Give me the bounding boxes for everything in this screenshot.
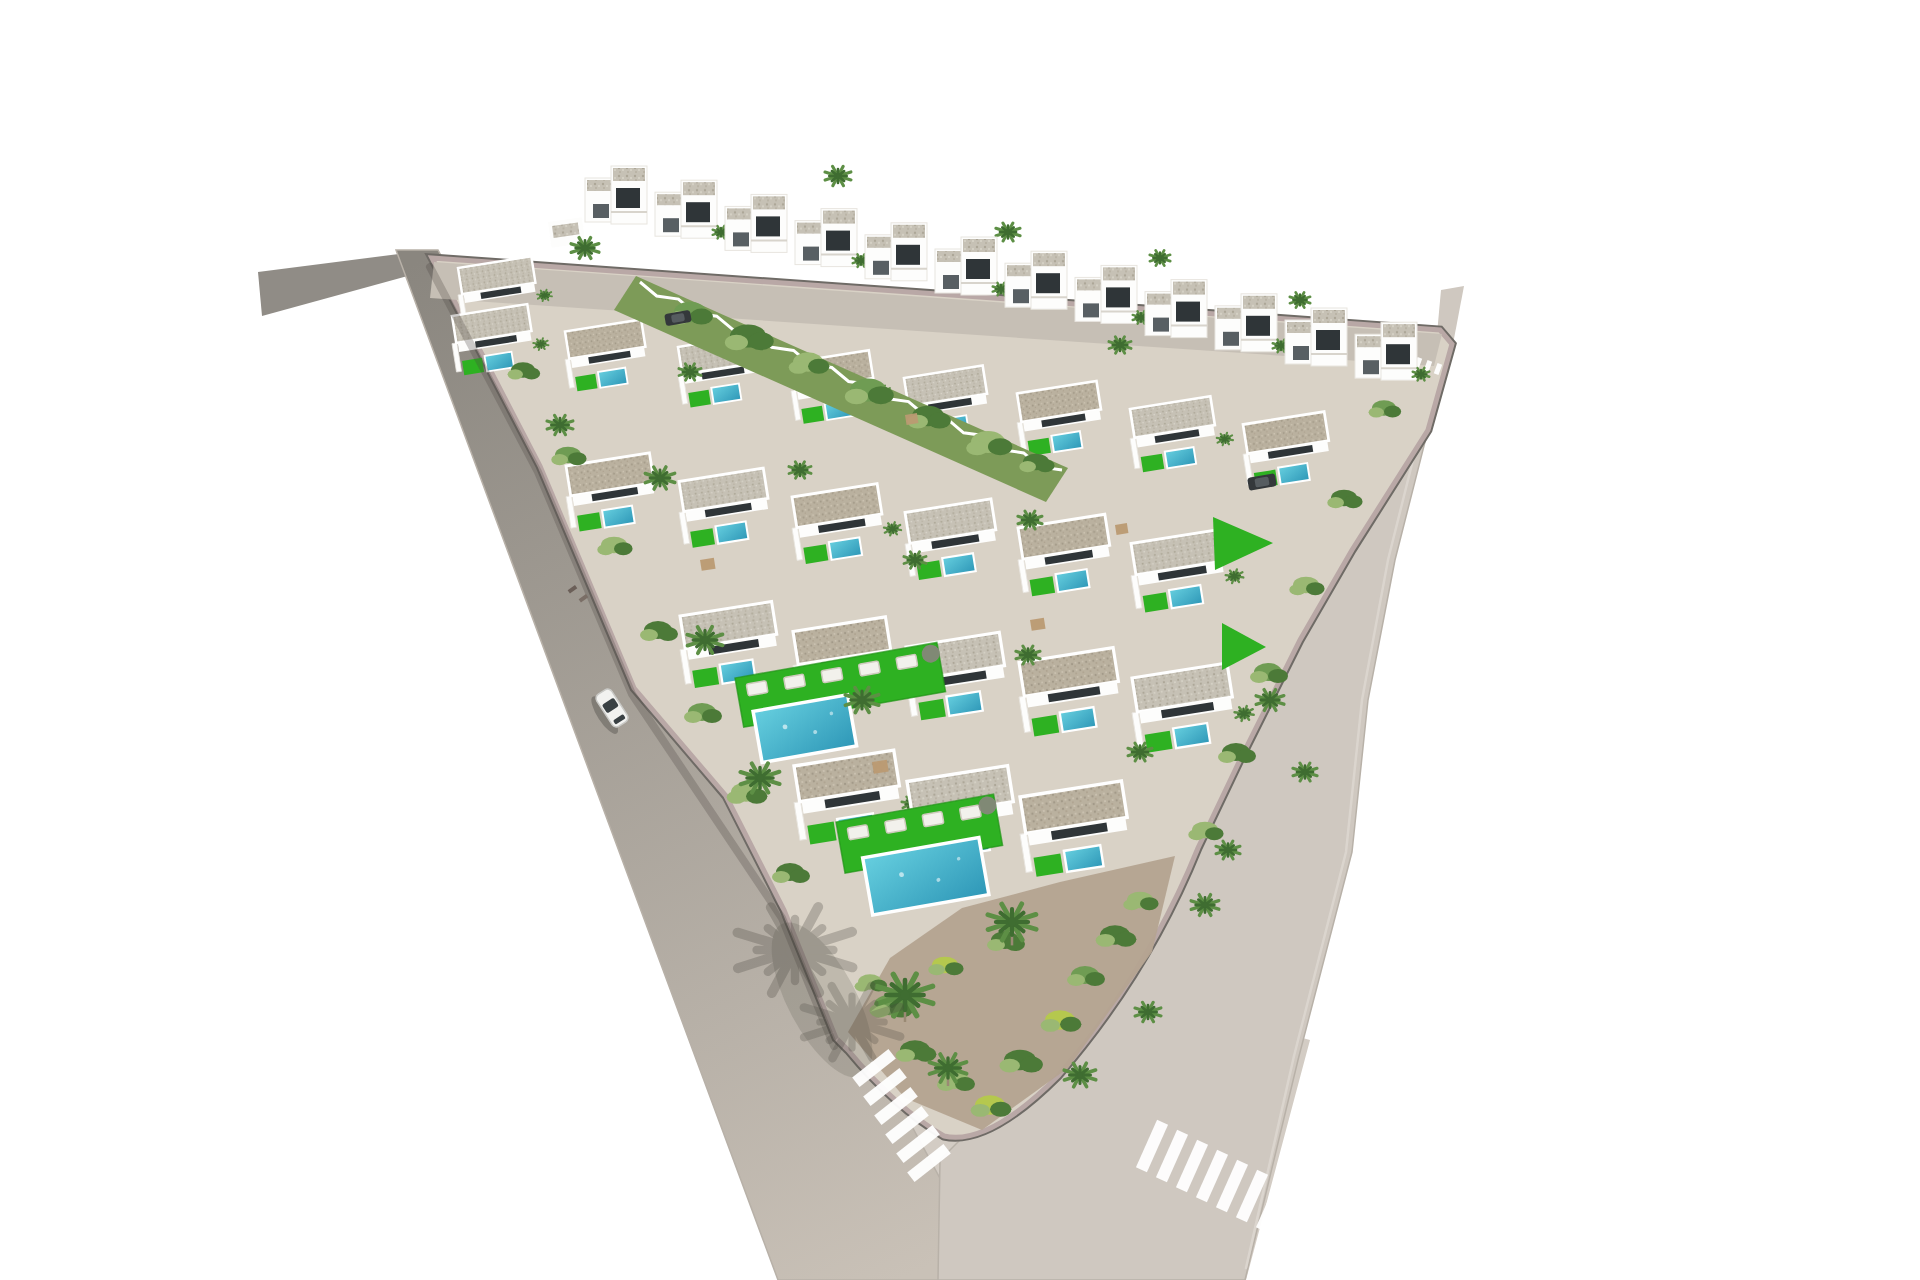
garage-opening: [1153, 318, 1169, 332]
pergola: [1115, 523, 1128, 535]
palm-crown: [1158, 256, 1162, 260]
palm-crown: [702, 637, 708, 643]
garage-opening: [733, 232, 749, 246]
swimming-pool: [1169, 585, 1203, 608]
pergola: [905, 413, 918, 425]
garage-opening: [1223, 332, 1239, 346]
balcony-window: [1246, 316, 1270, 336]
side-wing-roof: [1147, 294, 1173, 305]
bush-blob: [746, 789, 767, 804]
garage-opening: [943, 275, 959, 289]
bush-blob: [1036, 459, 1055, 472]
swimming-pool: [715, 521, 748, 543]
bush-blob: [928, 964, 945, 975]
roof-deck: [753, 196, 785, 209]
bush-blob: [727, 791, 746, 804]
bush-blob: [1268, 669, 1288, 683]
sun-lounger: [784, 674, 806, 689]
swimming-pool: [942, 553, 976, 576]
bush-blob: [1384, 405, 1401, 417]
palm-crown: [859, 697, 865, 703]
garage-opening: [1083, 303, 1099, 317]
side-wing-roof: [1217, 308, 1243, 319]
bush-blob: [508, 369, 523, 379]
bush-blob: [915, 1047, 936, 1062]
palm-crown: [798, 468, 802, 472]
palm-crown: [1028, 518, 1032, 522]
balcony-window: [1036, 273, 1060, 293]
side-wing-roof: [797, 223, 823, 234]
bush-blob: [1020, 1057, 1043, 1073]
bush-blob: [551, 454, 568, 465]
bush-blob: [523, 367, 540, 379]
bush-blob: [1188, 829, 1205, 840]
sun-lounger: [847, 825, 869, 840]
side-wing-roof: [657, 194, 683, 205]
bush-blob: [690, 309, 713, 325]
bush-blob: [614, 542, 633, 555]
garage-opening: [663, 218, 679, 232]
palm-crown: [1008, 918, 1016, 926]
bush-blob: [1289, 584, 1306, 595]
bush-blob: [955, 1077, 975, 1091]
garage-opening: [1293, 346, 1309, 360]
balcony-window: [826, 231, 850, 251]
bush-blob: [990, 1102, 1011, 1117]
palm-crown: [1118, 343, 1122, 347]
swimming-pool: [1060, 707, 1097, 732]
bush-blob: [725, 335, 748, 350]
side-wing-roof: [1287, 322, 1313, 333]
bush-blob: [1140, 897, 1159, 910]
swimming-pool: [1056, 569, 1090, 592]
pergola: [872, 760, 889, 774]
swimming-pool: [1278, 463, 1310, 484]
balcony-window: [1106, 287, 1130, 307]
palm-crown: [1268, 698, 1273, 703]
roof-deck: [1103, 267, 1135, 280]
side-wing-roof: [587, 180, 613, 191]
balcony-window: [1316, 330, 1340, 350]
bush-blob: [1218, 751, 1236, 763]
garage-opening: [1363, 360, 1379, 374]
swimming-pool: [1165, 447, 1196, 468]
balcony-window: [756, 216, 780, 236]
sun-lounger: [922, 811, 944, 826]
balcony-window: [1386, 344, 1410, 364]
bush-blob: [790, 869, 810, 883]
balcony-window: [1176, 302, 1200, 322]
palm-crown: [1000, 288, 1003, 291]
roof-deck: [1173, 282, 1205, 295]
side-wing-roof: [1007, 265, 1033, 276]
bush-blob: [1306, 582, 1325, 595]
pergola: [1030, 618, 1046, 631]
bush-blob: [1096, 934, 1115, 947]
swimming-pool: [485, 352, 514, 372]
palm-crown: [1203, 903, 1208, 908]
roof-deck: [1033, 253, 1065, 266]
bush-blob: [1236, 749, 1256, 763]
bush-blob: [1123, 899, 1140, 910]
bush-blob: [896, 1049, 915, 1062]
bush-blob: [772, 871, 790, 883]
palm-crown: [720, 231, 723, 234]
swimming-pool: [598, 368, 628, 388]
bush-blob: [868, 386, 894, 404]
bush-blob: [1344, 495, 1363, 508]
balcony-window: [896, 245, 920, 265]
garage-opening: [593, 204, 609, 218]
bush-blob: [808, 359, 829, 374]
roof-deck: [1243, 296, 1275, 309]
roof-deck: [893, 225, 925, 238]
bush-blob: [568, 452, 587, 465]
palm-crown: [1280, 344, 1283, 347]
roof-deck: [683, 182, 715, 195]
aerial-render: [0, 0, 1920, 1280]
side-wing-roof: [727, 208, 753, 219]
garage-opening: [803, 247, 819, 261]
palm-crown: [945, 1065, 951, 1071]
bush-blob: [1067, 974, 1085, 986]
swimming-pool: [946, 691, 983, 716]
swimming-pool: [1051, 431, 1082, 452]
swimming-pool: [829, 537, 862, 559]
sun-lounger: [859, 661, 881, 676]
palm-crown: [1138, 750, 1142, 754]
balcony-window: [966, 259, 990, 279]
bush-blob: [988, 438, 1012, 455]
bush-blob: [1085, 972, 1105, 986]
garage-opening: [873, 261, 889, 275]
sun-lounger: [885, 818, 907, 833]
swimming-pool: [711, 383, 741, 403]
bush-blob: [597, 544, 614, 555]
side-wing-roof: [1357, 336, 1383, 347]
bush-blob: [748, 332, 774, 350]
palm-crown: [583, 246, 588, 251]
bush-blob: [1060, 1017, 1081, 1032]
bush-blob: [1250, 671, 1268, 683]
bush-blob: [1041, 1019, 1060, 1032]
palm-crown: [1006, 230, 1010, 234]
bush-blob: [789, 361, 808, 374]
palm-crown: [1026, 653, 1030, 657]
palm-crown: [860, 259, 863, 262]
garage-opening: [1013, 289, 1029, 303]
bush-blob: [845, 389, 868, 404]
swimming-pool: [602, 506, 635, 528]
bush-blob: [1369, 407, 1384, 417]
bush-blob: [658, 627, 678, 641]
swimming-pool: [1064, 845, 1104, 872]
bush-blob: [971, 1104, 990, 1117]
roof-deck: [963, 239, 995, 252]
palm-crown: [836, 174, 840, 178]
palm-crown: [757, 775, 764, 782]
palm-crown: [1420, 373, 1423, 376]
bush-blob: [928, 413, 951, 429]
scene-svg: [0, 0, 1920, 1280]
side-wing-roof: [937, 251, 963, 262]
sun-lounger: [896, 654, 918, 669]
bush-blob: [684, 711, 702, 723]
sun-lounger: [960, 805, 982, 820]
bush-blob: [999, 1059, 1020, 1073]
bush-blob: [1205, 827, 1224, 840]
bush-blob: [1019, 461, 1036, 472]
palm-crown: [1226, 848, 1230, 852]
bush-blob: [1115, 932, 1136, 947]
palm-crown: [1146, 1010, 1150, 1014]
roof-deck: [1383, 324, 1415, 337]
palm-crown: [1140, 316, 1143, 319]
bush-blob: [945, 962, 964, 975]
sun-lounger: [746, 681, 768, 696]
palm-crown: [1298, 298, 1302, 302]
palm-crown: [688, 370, 692, 374]
bush-blob: [702, 709, 722, 723]
bush-blob: [640, 629, 658, 641]
palm-crown: [657, 475, 662, 480]
palm-crown: [1077, 1072, 1082, 1077]
bush-blob: [966, 441, 988, 456]
palm-crown: [913, 558, 917, 562]
palm-crown: [900, 990, 910, 1000]
palm-crown: [1303, 770, 1307, 774]
sun-lounger: [821, 667, 843, 682]
balcony-window: [616, 188, 640, 208]
side-wing-roof: [1077, 279, 1103, 290]
balcony-window: [686, 202, 710, 222]
roof-deck: [1313, 310, 1345, 323]
side-wing-roof: [867, 237, 893, 248]
pergola: [700, 558, 716, 571]
roof-deck: [613, 168, 645, 181]
palm-crown: [558, 423, 562, 427]
swimming-pool: [1173, 723, 1210, 748]
bush-blob: [1327, 497, 1344, 508]
roof-deck: [823, 211, 855, 224]
